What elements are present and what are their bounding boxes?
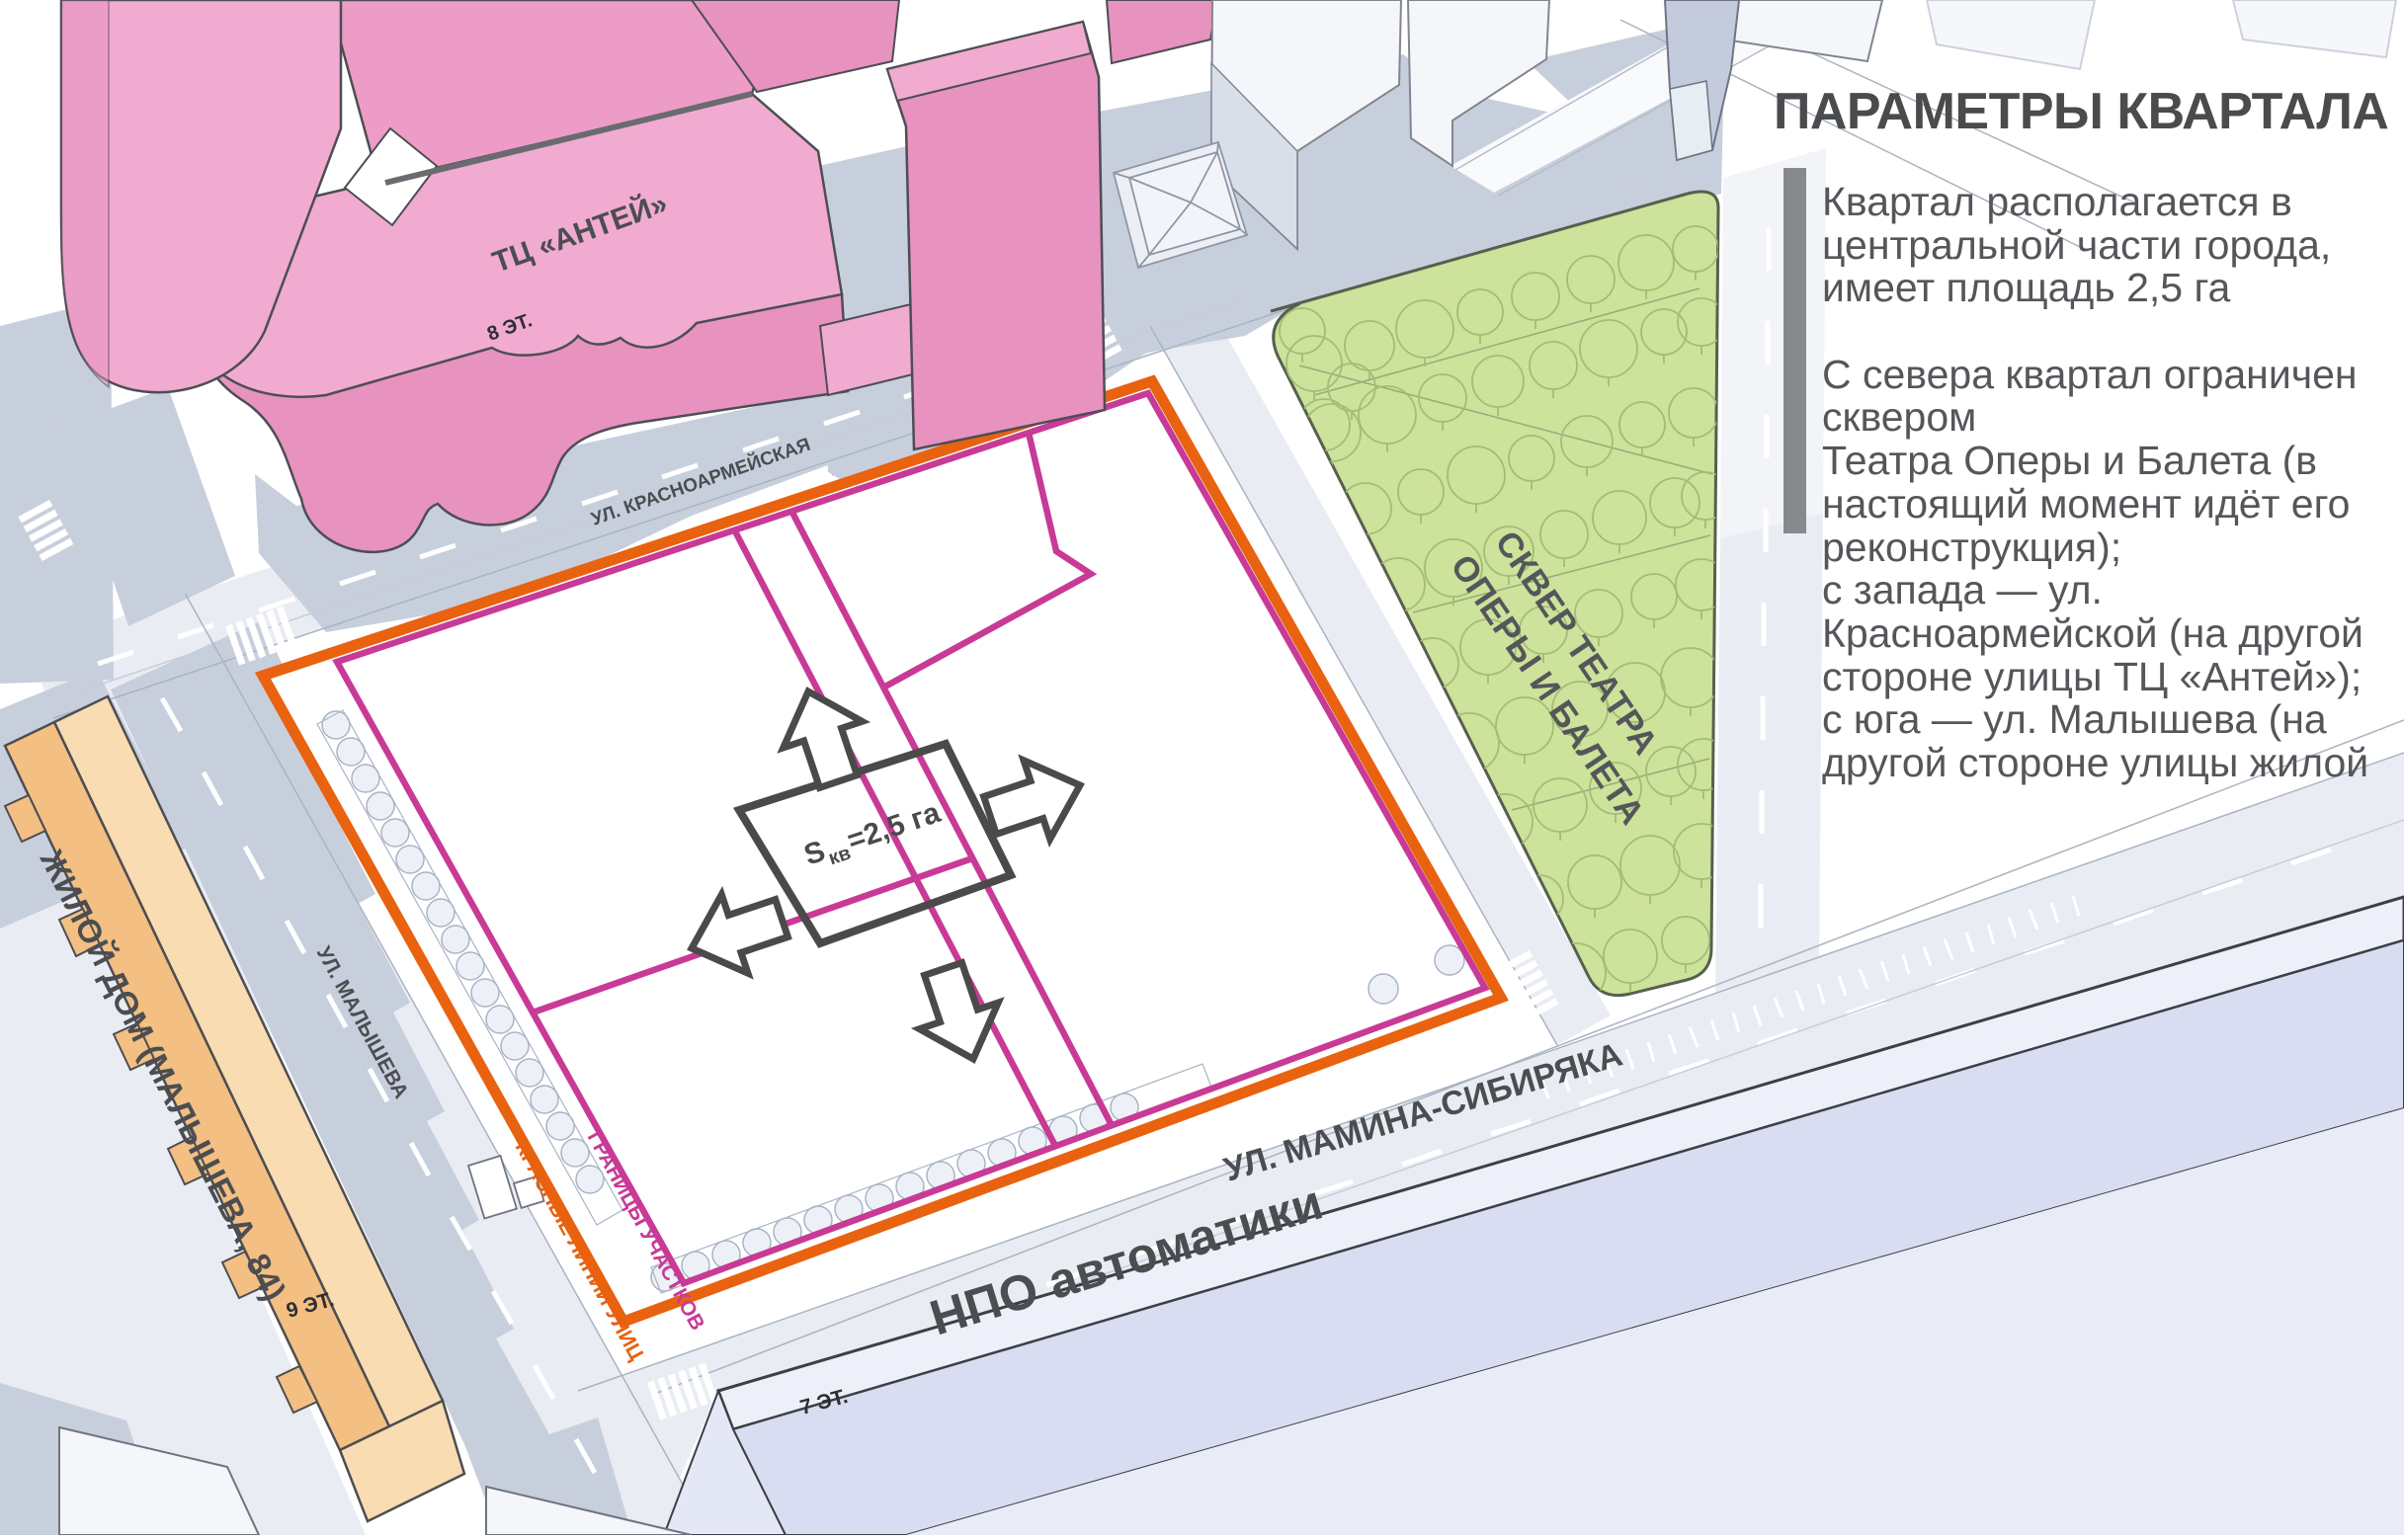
svg-text:ПАРАМЕТРЫ КВАРТАЛА: ПАРАМЕТРЫ КВАРТАЛА	[1774, 83, 2388, 140]
svg-text:реконструкция);: реконструкция);	[1822, 525, 2121, 570]
svg-text:с юга — ул. Малышева (на: с юга — ул. Малышева (на	[1822, 696, 2327, 742]
svg-text:С севера квартал ограничен: С севера квартал ограничен	[1822, 352, 2358, 397]
svg-text:с запада — ул.: с запада — ул.	[1822, 567, 2103, 612]
svg-text:другой стороне улицы жилой: другой стороне улицы жилой	[1822, 740, 2368, 785]
svg-text:настоящий момент идёт его: настоящий момент идёт его	[1822, 481, 2350, 527]
svg-text:стороне улицы ТЦ «Антей»);: стороне улицы ТЦ «Антей»);	[1822, 654, 2362, 699]
svg-text:сквером: сквером	[1822, 394, 1976, 440]
svg-text:Красноармейской (на другой: Красноармейской (на другой	[1822, 610, 2363, 656]
svg-text:Квартал располагается в: Квартал располагается в	[1822, 179, 2292, 224]
svg-text:имеет площадь 2,5 га: имеет площадь 2,5 га	[1822, 265, 2231, 310]
svg-text:центральной части города,: центральной части города,	[1822, 222, 2331, 268]
svg-text:Театра Оперы и Балета (в: Театра Оперы и Балета (в	[1822, 438, 2317, 483]
